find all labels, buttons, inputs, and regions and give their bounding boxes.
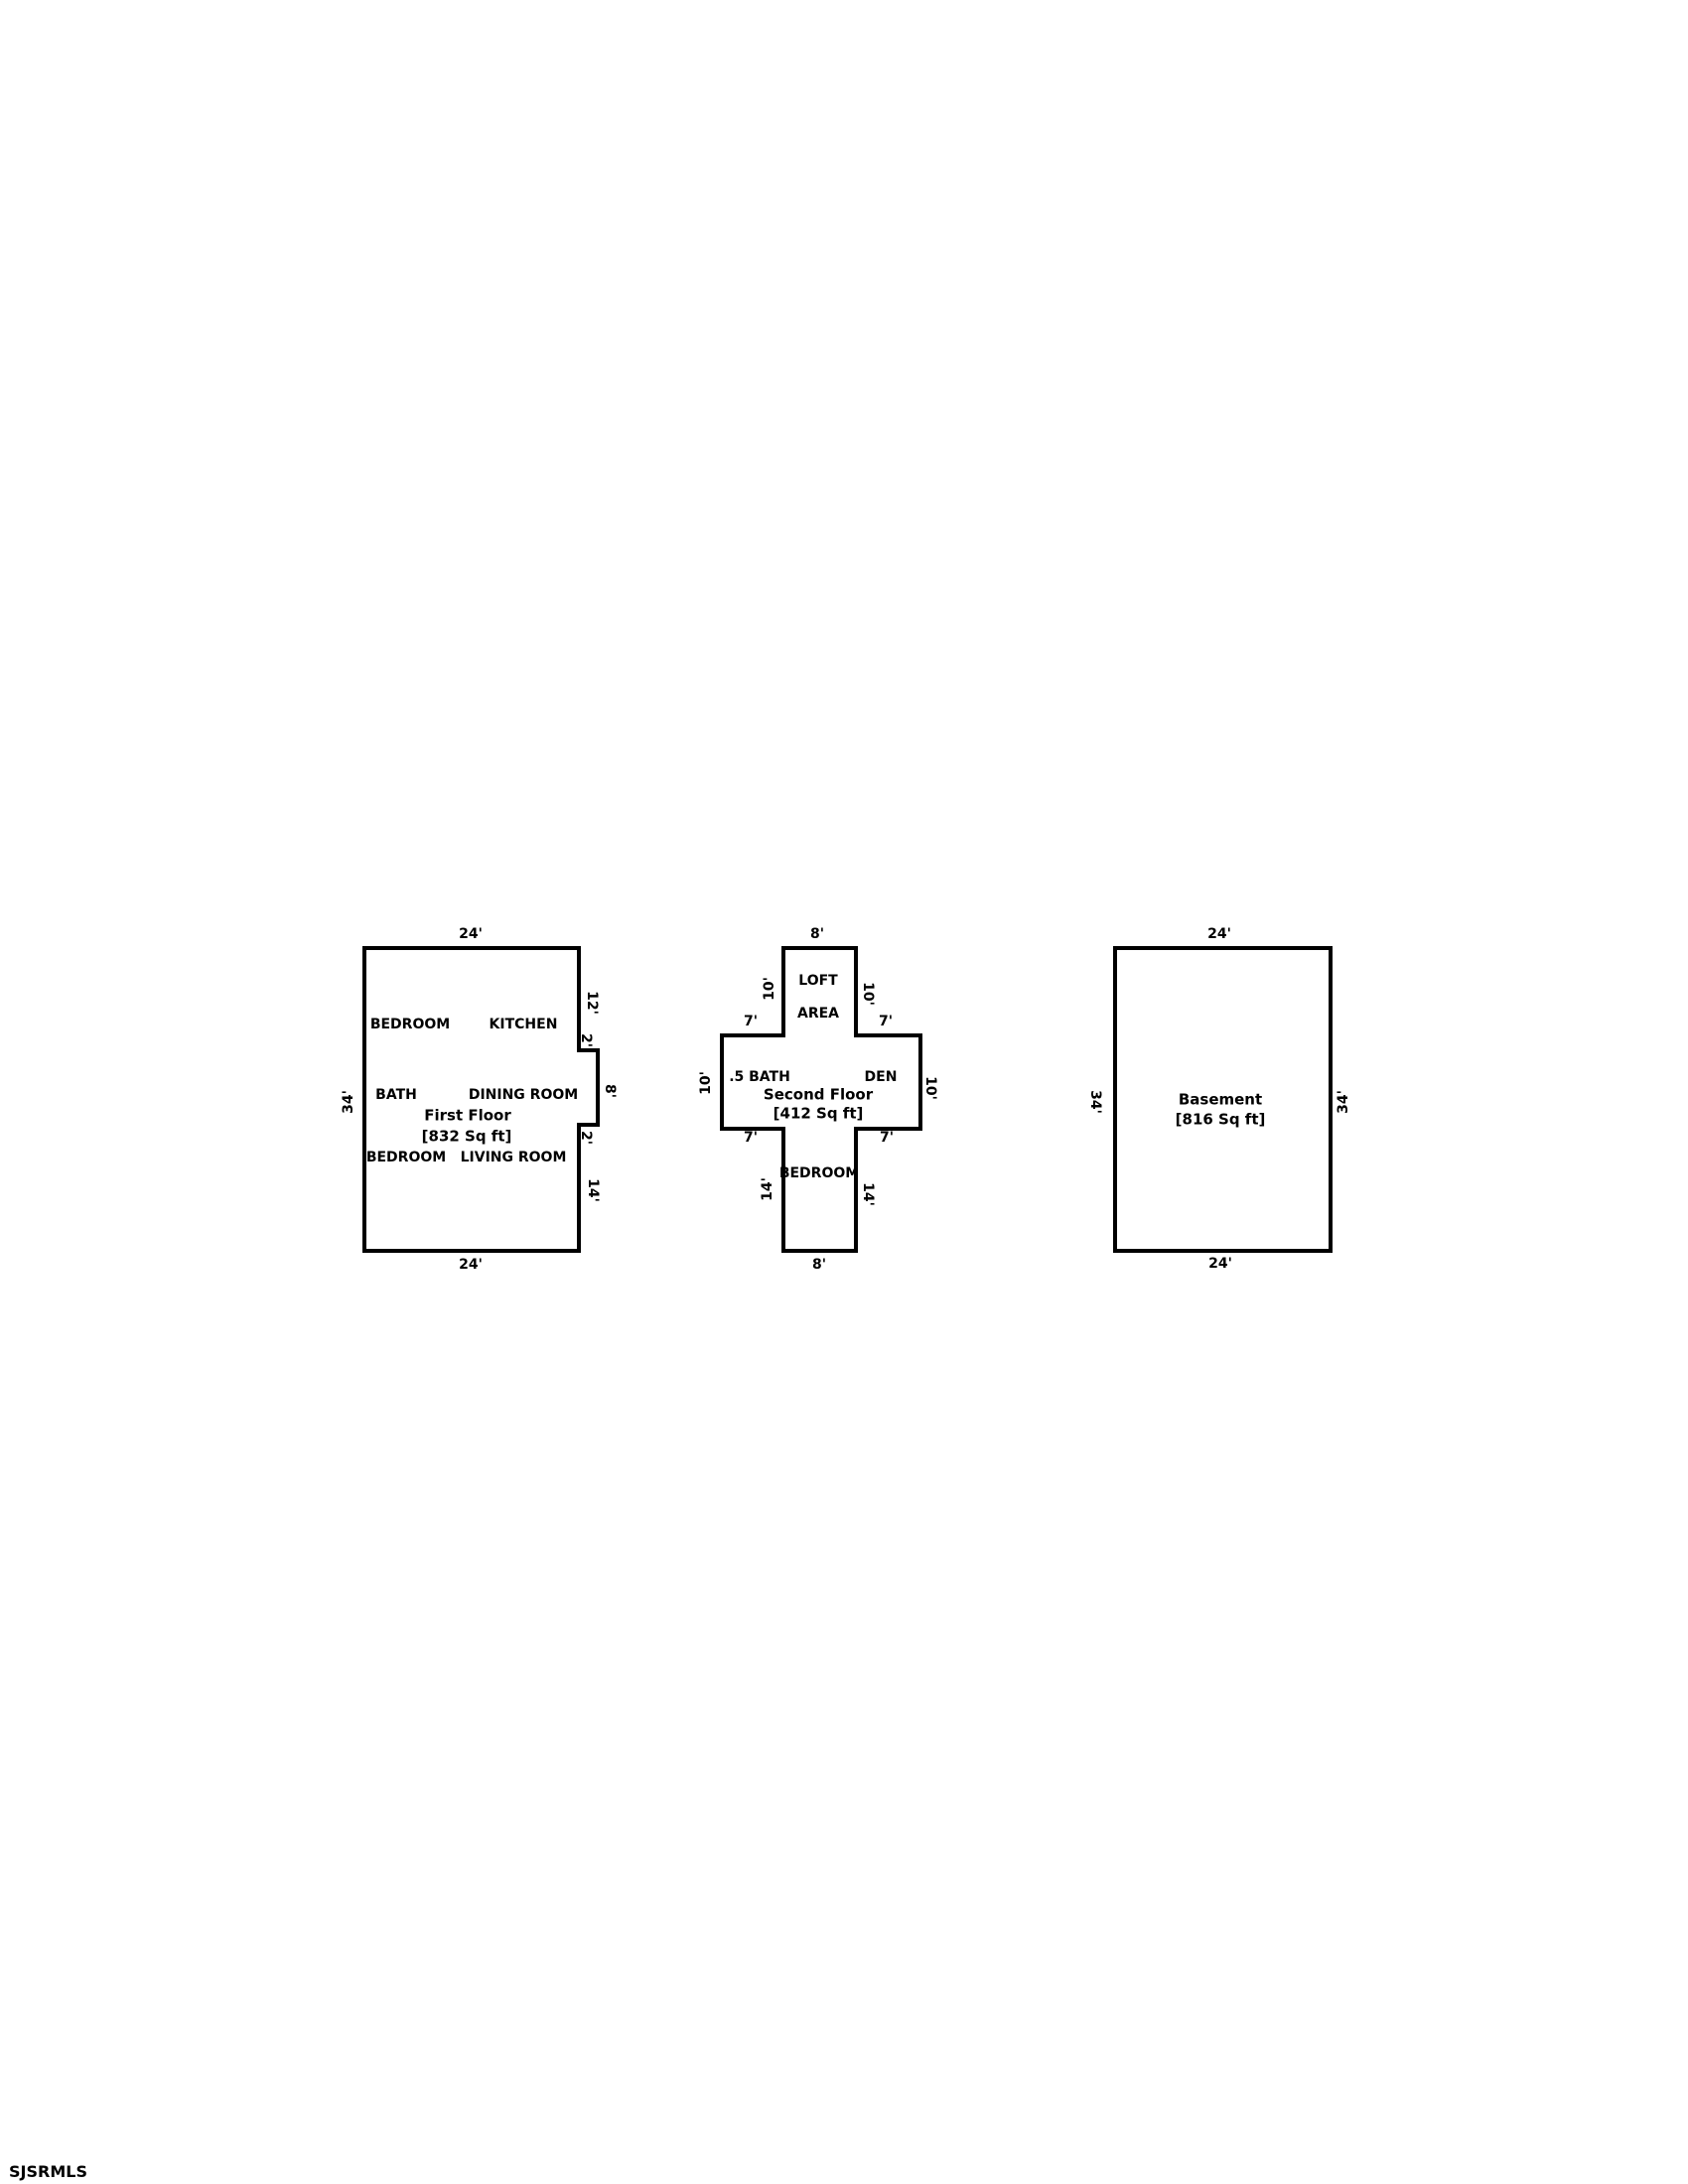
second-floor-dim-mid-left: 10' — [699, 1071, 713, 1095]
basement-dim-right: 34' — [1336, 1090, 1350, 1114]
basement-dim-left: 34' — [1088, 1090, 1102, 1114]
second-floor-dim-bottom-arm-left: 14' — [761, 1177, 774, 1201]
second-floor-dim-bottom-arm-right: 14' — [861, 1182, 875, 1206]
second-floor-room-loft-area: AREA — [797, 1007, 839, 1021]
first-floor-dim-right-lower: 14' — [586, 1178, 600, 1202]
second-floor-room-bedroom: BEDROOM — [779, 1166, 859, 1180]
first-floor-room-kitchen: KITCHEN — [490, 1018, 558, 1031]
basement-area: [816 Sq ft] — [1176, 1113, 1266, 1128]
basement-dim-bottom: 24' — [1208, 1257, 1232, 1271]
first-floor-dim-jog-upper: 2' — [579, 1033, 593, 1047]
second-floor-title: Second Floor — [764, 1088, 873, 1103]
second-floor-room-loft: LOFT — [798, 974, 837, 988]
second-floor-dim-shoulder-right: 7' — [879, 1015, 893, 1028]
first-floor-dim-bump: 8' — [603, 1084, 617, 1098]
basement-dim-top: 24' — [1207, 927, 1231, 941]
first-floor-dim-top: 24' — [459, 927, 483, 941]
first-floor-room-living: LIVING ROOM — [461, 1151, 567, 1164]
first-floor-room-dining: DINING ROOM — [469, 1088, 578, 1102]
second-floor-dim-shoulder-left: 7' — [744, 1015, 758, 1028]
first-floor-dim-bottom: 24' — [459, 1258, 483, 1272]
basement-title: Basement — [1179, 1093, 1262, 1108]
first-floor-area: [832 Sq ft] — [422, 1130, 512, 1145]
second-floor-dim-hip-right: 7' — [880, 1131, 894, 1145]
second-floor-dim-hip-left: 7' — [744, 1131, 758, 1145]
first-floor-title: First Floor — [424, 1109, 511, 1124]
second-floor-dim-bottom: 8' — [812, 1258, 826, 1272]
first-floor-dim-left: 34' — [342, 1090, 355, 1114]
second-floor-room-half-bath: .5 BATH — [729, 1070, 790, 1084]
second-floor-area: [412 Sq ft] — [774, 1107, 864, 1122]
second-floor-dim-top-arm-right: 10' — [861, 982, 875, 1006]
second-floor-dim-top-arm-left: 10' — [763, 977, 776, 1001]
floor-plan-page: 24' BEDROOM KITCHEN 12' 2' BATH DINING R… — [0, 0, 1688, 2184]
second-floor-dim-mid-right: 10' — [923, 1076, 937, 1100]
first-floor-room-bath: BATH — [375, 1088, 417, 1102]
second-floor-room-den: DEN — [865, 1070, 898, 1084]
first-floor-room-bedroom-1: BEDROOM — [370, 1018, 450, 1031]
mls-watermark: SJSRMLS — [9, 2163, 87, 2181]
first-floor-dim-right-upper: 12' — [585, 991, 599, 1015]
first-floor-room-bedroom-2: BEDROOM — [366, 1151, 446, 1164]
first-floor-dim-jog-lower: 2' — [579, 1131, 593, 1145]
second-floor-dim-top: 8' — [810, 927, 824, 941]
